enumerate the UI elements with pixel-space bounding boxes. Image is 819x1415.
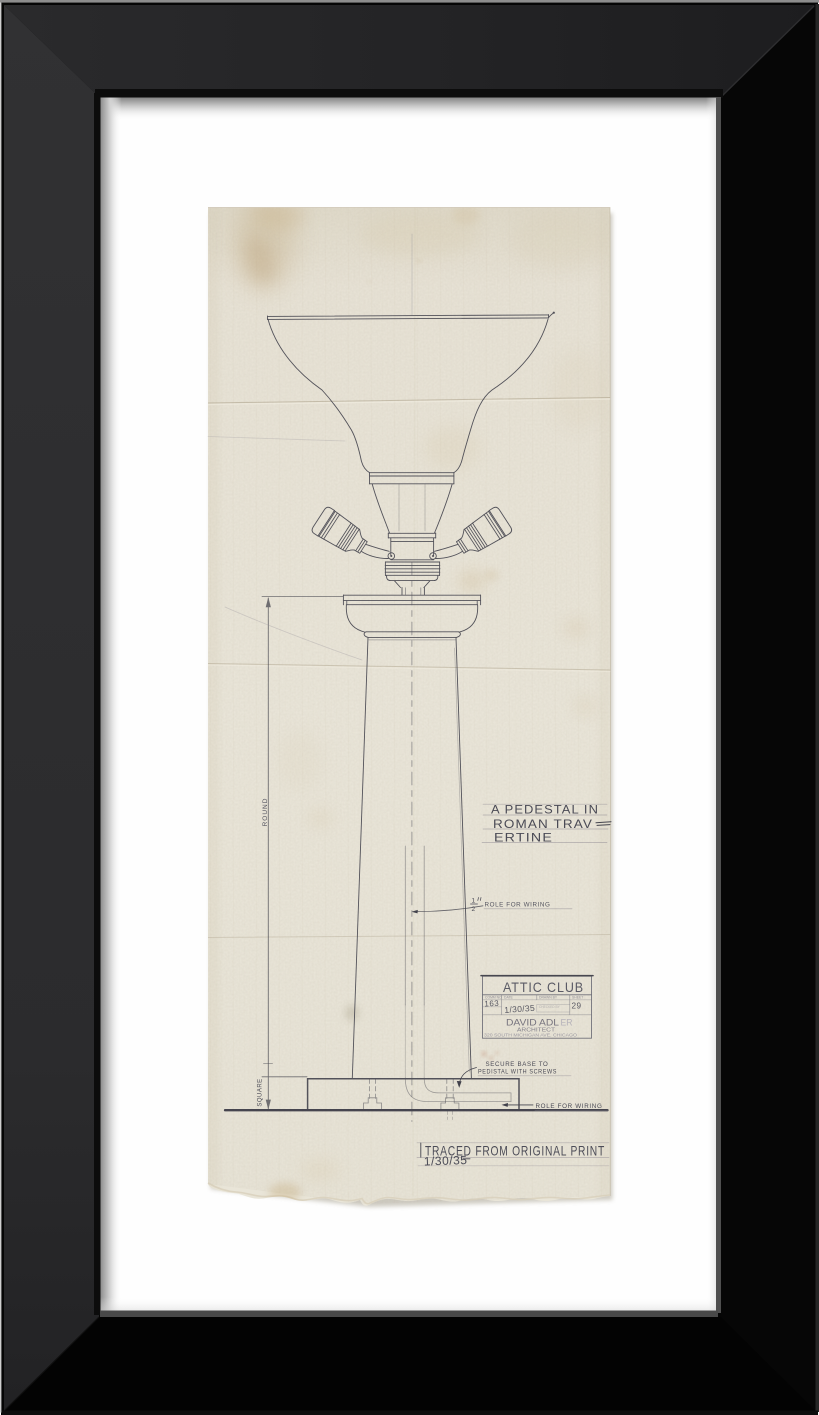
svg-text:ER: ER — [561, 1018, 573, 1028]
svg-text:CHECKED BY: CHECKED BY — [539, 1005, 561, 1009]
svg-text:DAVID ADL: DAVID ADL — [506, 1018, 559, 1028]
svg-text:PEDISTAL WITH SCREWS: PEDISTAL WITH SCREWS — [478, 1069, 557, 1076]
svg-text:ROLE FOR WIRING: ROLE FOR WIRING — [536, 1103, 603, 1110]
svg-text:ROUND: ROUND — [262, 798, 269, 827]
svg-text:ATTIC CLUB: ATTIC CLUB — [503, 979, 584, 995]
svg-text:DRAWN BY: DRAWN BY — [539, 995, 558, 999]
svg-text:1: 1 — [472, 898, 476, 905]
svg-text:1/30/35: 1/30/35 — [504, 1003, 535, 1015]
svg-text:1/30/35: 1/30/35 — [424, 1153, 468, 1169]
svg-text:163: 163 — [484, 999, 499, 1009]
svg-text:ERTINE: ERTINE — [494, 830, 553, 844]
svg-text:DATE: DATE — [504, 995, 514, 999]
svg-text:SECURE BASE TO: SECURE BASE TO — [486, 1061, 549, 1068]
svg-text:SQUARE: SQUARE — [258, 1078, 264, 1106]
svg-text:SHEET: SHEET — [572, 995, 583, 999]
svg-text:A PEDESTAL IN: A PEDESTAL IN — [491, 803, 599, 817]
svg-text:29: 29 — [572, 1002, 582, 1011]
svg-text:ROLE FOR WIRING: ROLE FOR WIRING — [485, 901, 551, 908]
svg-text:ROMAN TRAV: ROMAN TRAV — [493, 817, 593, 831]
svg-text:320 SOUTH MICHIGAN AVE. CHICA: 320 SOUTH MICHIGAN AVE. CHICAGO — [484, 1033, 578, 1038]
